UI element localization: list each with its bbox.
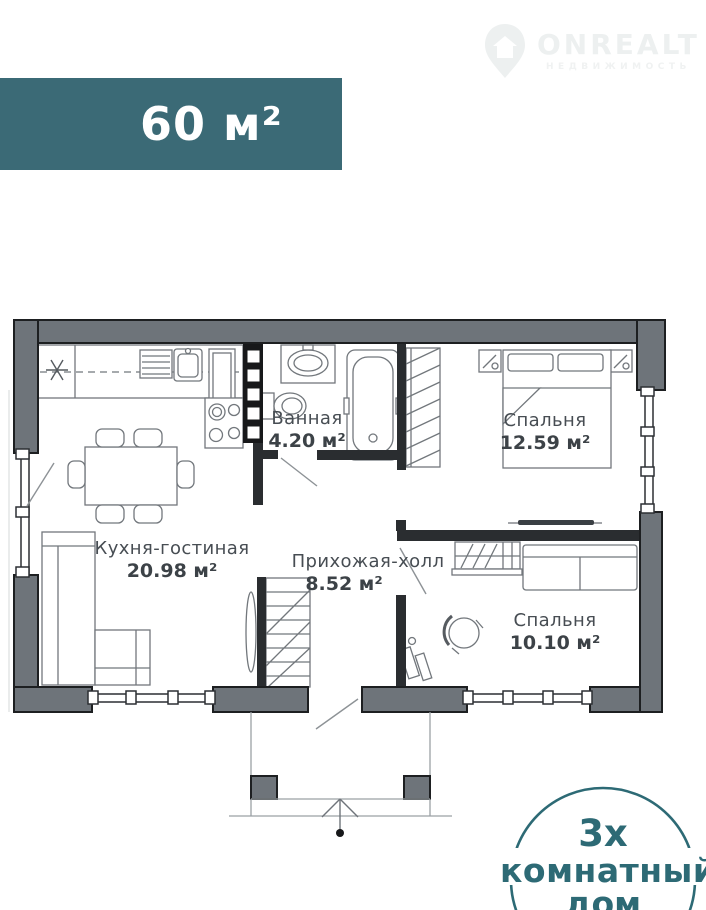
room-area: 8.52 м²: [264, 574, 424, 595]
fridge-symbol: [46, 360, 68, 380]
chair: [134, 429, 162, 447]
entrance-porch: [229, 712, 452, 837]
room-label-bathroom: Ванная 4.20 м²: [245, 408, 369, 452]
bedroom2-wardrobe: [452, 542, 522, 575]
pillow: [508, 354, 553, 371]
kitchen-sink: [174, 349, 202, 382]
hall-door-leaf: [246, 592, 256, 672]
chair: [96, 505, 124, 523]
entry-arrow: [322, 799, 358, 837]
bedroom1-wardrobe: [406, 348, 440, 467]
chair: [134, 505, 162, 523]
room-area: 12.59 м²: [475, 433, 615, 454]
chair: [68, 461, 85, 488]
stove: [205, 398, 243, 448]
pillow: [558, 354, 603, 371]
window-bottom-left: [88, 691, 215, 704]
dining-table: [68, 429, 194, 523]
entrance-door-swing: [316, 699, 358, 729]
bedroom2-sofa: [523, 545, 637, 590]
room-name: Ванная: [245, 408, 369, 429]
room-label-hall: Прихожая-холл 8.52 м²: [288, 551, 448, 595]
tv: [508, 520, 602, 525]
window-swing: [27, 463, 54, 506]
room-area: 20.98 м²: [92, 561, 252, 582]
room-area: 4.20 м²: [245, 431, 369, 452]
room-count-badge: 3х комнатный дом: [500, 770, 706, 910]
window-left: [16, 449, 29, 577]
bathroom-door-swing: [281, 458, 317, 486]
porch-column: [251, 776, 277, 799]
badge-line3: дом: [500, 884, 706, 910]
nightstand-left: [479, 350, 501, 372]
porch-column: [404, 776, 430, 799]
room-name: Кухня-гостиная: [92, 538, 252, 559]
dish-rack: [140, 350, 172, 378]
badge-line1: 3х: [500, 812, 706, 855]
desk-chair: [444, 616, 483, 654]
window-bottom-right: [463, 691, 592, 704]
nightstand-right: [610, 350, 632, 372]
room-label-kitchen: Кухня-гостиная 20.98 м²: [92, 538, 252, 582]
chair: [177, 461, 194, 488]
bathroom-sink: [281, 345, 335, 383]
chair: [96, 429, 124, 447]
room-area: 10.10 м²: [485, 633, 625, 654]
room-label-bedroom2: Спальня 10.10 м²: [485, 610, 625, 654]
window-right: [641, 387, 654, 513]
room-name: Спальня: [485, 610, 625, 631]
room-label-bedroom1: Спальня 12.59 м²: [475, 410, 615, 454]
room-name: Прихожая-холл: [288, 551, 448, 572]
page: ONREALT НЕДВИЖИМОСТЬ 60 м²: [0, 0, 706, 910]
room-name: Спальня: [475, 410, 615, 431]
